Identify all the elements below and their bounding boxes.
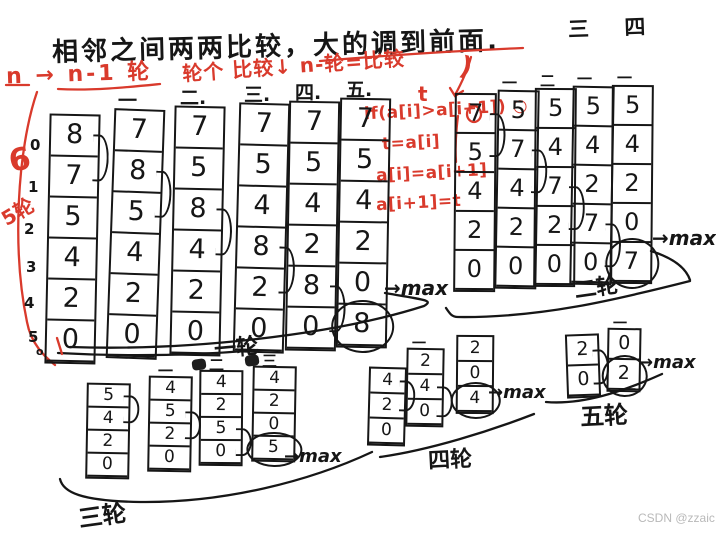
array-cell: 7: [176, 108, 224, 150]
array-cell: 0: [535, 246, 573, 285]
array-cell: 2: [573, 166, 612, 206]
array-cell: 0: [496, 248, 535, 288]
array-cell: 5: [537, 90, 575, 129]
array-cell: 0: [149, 447, 189, 471]
array-column-pass1-2: 785420: [106, 108, 166, 360]
top-right-label: 三 四: [568, 10, 660, 43]
round-label: 二轮: [572, 267, 620, 305]
max-annotation: →max: [284, 446, 342, 467]
array-cell: 8: [113, 151, 161, 194]
array-cell: 2: [88, 431, 128, 455]
array-cell: 4: [340, 182, 388, 224]
array-cell: 8: [174, 190, 222, 232]
array-cell: 5: [112, 192, 160, 235]
array-cell: 4: [254, 368, 294, 392]
array-cell: 2: [47, 279, 95, 321]
array-cell: 2: [236, 268, 284, 310]
round-label: 三轮: [76, 493, 128, 534]
max-annotation: →max: [384, 276, 448, 300]
array-cell: 2: [288, 226, 336, 268]
swap-arc: [215, 209, 232, 256]
array-column-pass2-5: 54207: [610, 85, 654, 284]
array-cell: 0: [108, 315, 156, 358]
array-cell: 4: [536, 129, 574, 168]
array-cell: 4: [289, 185, 337, 227]
swap-arc: [92, 135, 109, 182]
array-cell: 5: [290, 144, 338, 186]
array-cell: 5: [341, 141, 389, 183]
array-cell: 2: [458, 337, 492, 362]
swap-arc: [123, 396, 139, 424]
max-annotation: →max: [488, 382, 546, 403]
array-cell: 2: [455, 212, 493, 251]
array-cell: 5: [49, 198, 97, 240]
array-cell: 2: [408, 350, 442, 376]
array-cell: 4: [613, 126, 651, 165]
array-column-pass1-3: 758420: [169, 105, 225, 356]
array-cell: 0: [455, 251, 493, 290]
max-annotation: →max: [652, 226, 716, 250]
array-column-pass2-1: 75420: [453, 93, 497, 292]
watermark: CSDN @zzaic: [638, 511, 715, 525]
index-label: 1: [28, 178, 38, 196]
array-cell: 2: [613, 165, 651, 204]
array-cell: 5: [499, 92, 538, 132]
array-cell: 5: [574, 88, 613, 128]
array-cell: 4: [150, 378, 190, 402]
array-cell: 4: [173, 231, 221, 273]
array-column-pass1-6: 754208: [336, 98, 391, 349]
max-circle: [331, 299, 395, 353]
array-cell: 8: [51, 116, 99, 158]
array-cell: 7: [290, 103, 338, 145]
array-column-pass5-2: 02: [606, 328, 641, 393]
array-column-pass5-1: 20: [565, 333, 601, 398]
index-label: 4: [24, 294, 34, 312]
array-cell: 2: [339, 223, 387, 265]
array-cell: 8: [237, 227, 285, 269]
index-label: 0: [30, 136, 40, 154]
array-column-pass4-1: 420: [367, 367, 407, 447]
array-column-pass1-1: 875420: [44, 113, 100, 364]
round-label: 四轮: [427, 441, 473, 475]
array-cell: 4: [48, 239, 96, 281]
array-column-pass1-5: 754280: [285, 101, 340, 352]
array-cell: 2: [201, 395, 241, 418]
array-cell: 7: [341, 100, 389, 142]
array-cell: 7: [240, 104, 288, 146]
whiteboard-canvas: 相邻之间两两比较，大的调到前面. 三 四 n → n-1 轮 轮个 比较↓ n-…: [0, 0, 716, 537]
array-column-pass3-3: 4250: [199, 370, 244, 466]
array-cell: 0: [287, 308, 335, 350]
array-cell: 0: [46, 320, 94, 362]
array-cell: 7: [50, 157, 98, 199]
index-label: o: [36, 345, 44, 358]
array-cell: 5: [175, 149, 223, 191]
array-cell: 2: [109, 274, 157, 317]
array-column-pass3-1: 5420: [85, 383, 131, 480]
array-cell: 0: [87, 454, 127, 478]
rounds-formula: n → n-1 轮: [5, 53, 152, 90]
array-cell: 2: [254, 391, 294, 415]
array-cell: 4: [456, 173, 494, 212]
array-cell: 0: [369, 419, 404, 445]
index-label: 5: [28, 328, 38, 346]
array-cell: 5: [614, 87, 652, 126]
max-annotation: →max: [638, 352, 696, 373]
array-column-pass3-2: 4520: [147, 376, 193, 473]
array-cell: 5: [239, 145, 287, 187]
array-cell: 7: [115, 110, 163, 153]
swap-arc: [155, 171, 173, 219]
array-cell: 8: [288, 267, 336, 309]
array-column-pass1-4: 754820: [233, 102, 291, 353]
array-cell: 2: [172, 271, 220, 313]
index-label: 3: [26, 258, 36, 276]
array-cell: 4: [201, 372, 241, 395]
array-cell: 4: [238, 186, 286, 228]
array-column-pass4-2: 240: [405, 348, 444, 428]
round-label: 五轮: [579, 395, 629, 432]
array-cell: 4: [573, 127, 612, 167]
array-cell: 2: [497, 209, 536, 249]
array-cell: 4: [111, 233, 159, 276]
index-label: 2: [24, 220, 34, 238]
